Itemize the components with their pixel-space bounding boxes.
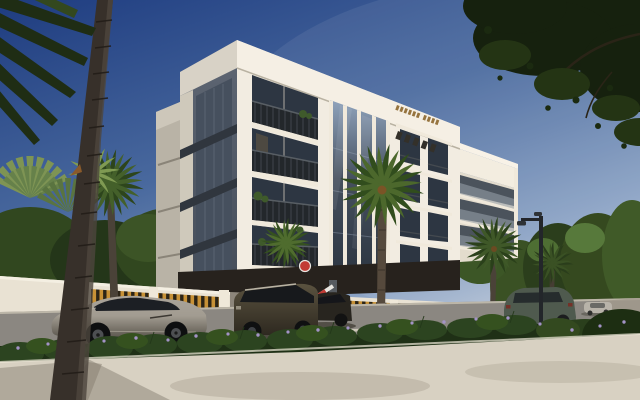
screenshot-root [0,0,640,400]
scene-canvas [0,0,640,400]
building-north-wing [156,102,180,292]
building-west-face [180,40,237,290]
barrier-red-disc [300,261,311,272]
